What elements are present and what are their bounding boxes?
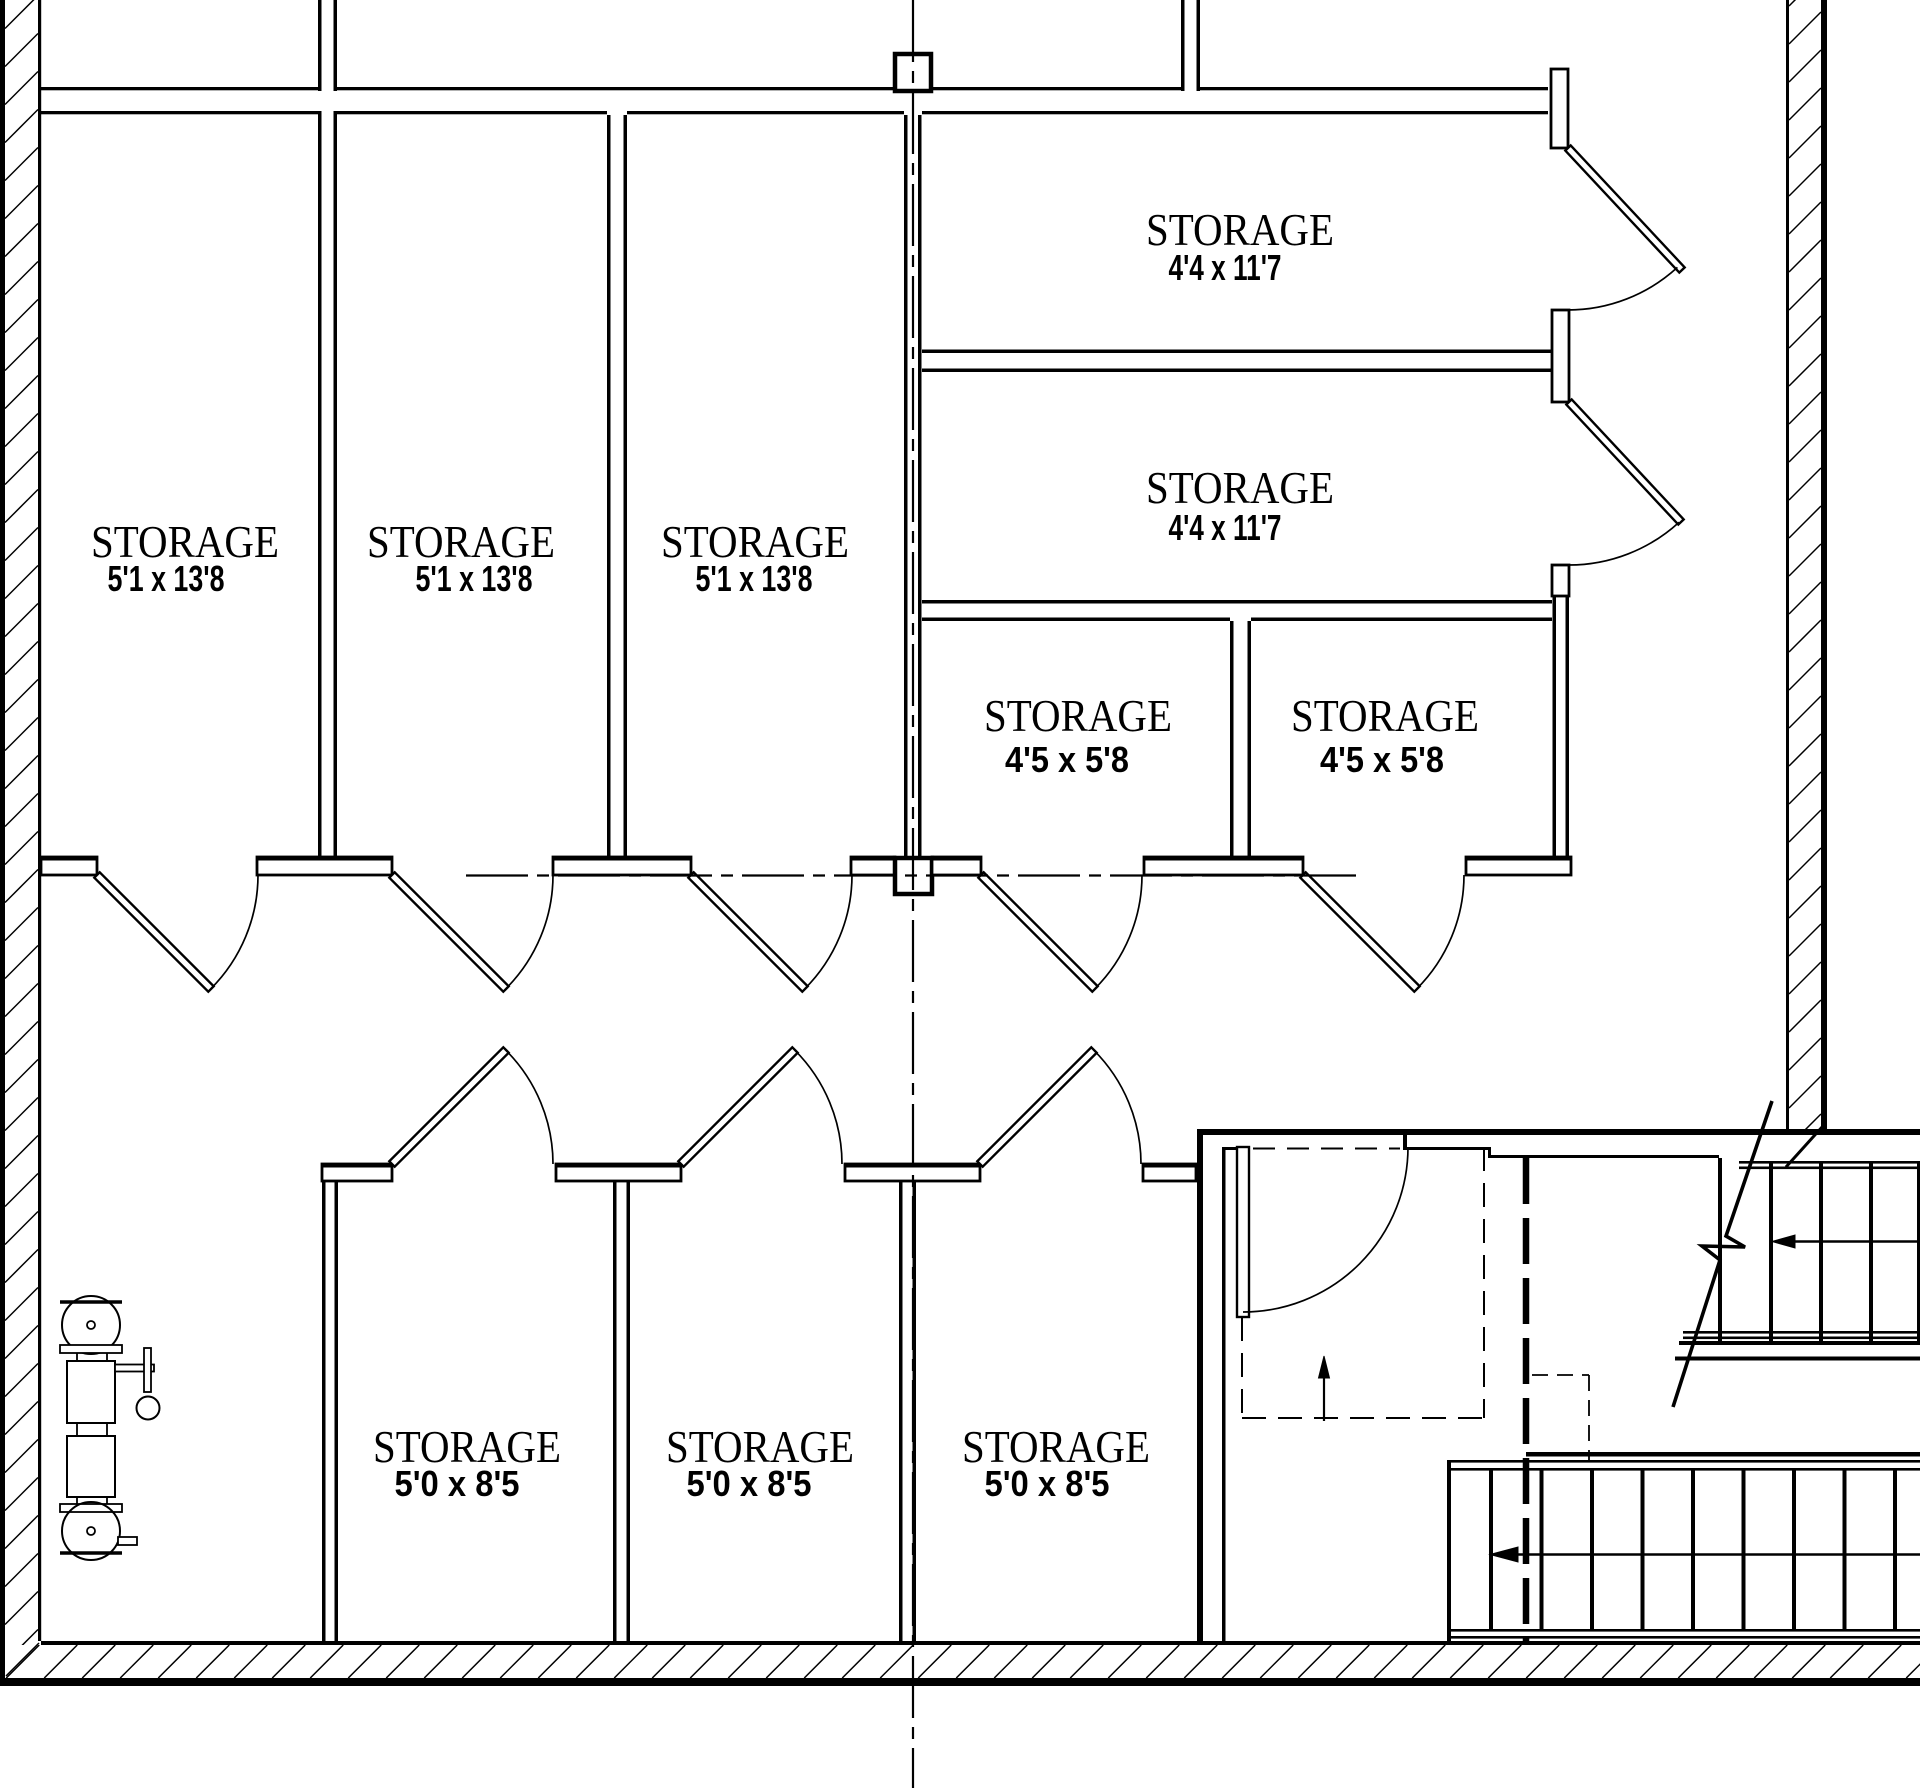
svg-text:4'5 x 5'8: 4'5 x 5'8	[1320, 739, 1444, 780]
svg-text:STORAGE: STORAGE	[1291, 690, 1479, 741]
svg-text:5'0 x 8'5: 5'0 x 8'5	[395, 1463, 520, 1504]
svg-text:5'1 x 13'8: 5'1 x 13'8	[416, 558, 533, 599]
svg-text:4'4 x 11'7: 4'4 x 11'7	[1169, 247, 1282, 288]
svg-text:4'4 x 11'7: 4'4 x 11'7	[1169, 507, 1282, 548]
svg-text:STORAGE: STORAGE	[1146, 462, 1334, 513]
svg-text:5'1 x 13'8: 5'1 x 13'8	[696, 558, 813, 599]
svg-text:5'1 x 13'8: 5'1 x 13'8	[108, 558, 225, 599]
svg-text:STORAGE: STORAGE	[984, 690, 1172, 741]
svg-text:5'0 x 8'5: 5'0 x 8'5	[985, 1463, 1110, 1504]
svg-text:4'5 x 5'8: 4'5 x 5'8	[1005, 739, 1129, 780]
svg-text:5'0 x 8'5: 5'0 x 8'5	[687, 1463, 812, 1504]
